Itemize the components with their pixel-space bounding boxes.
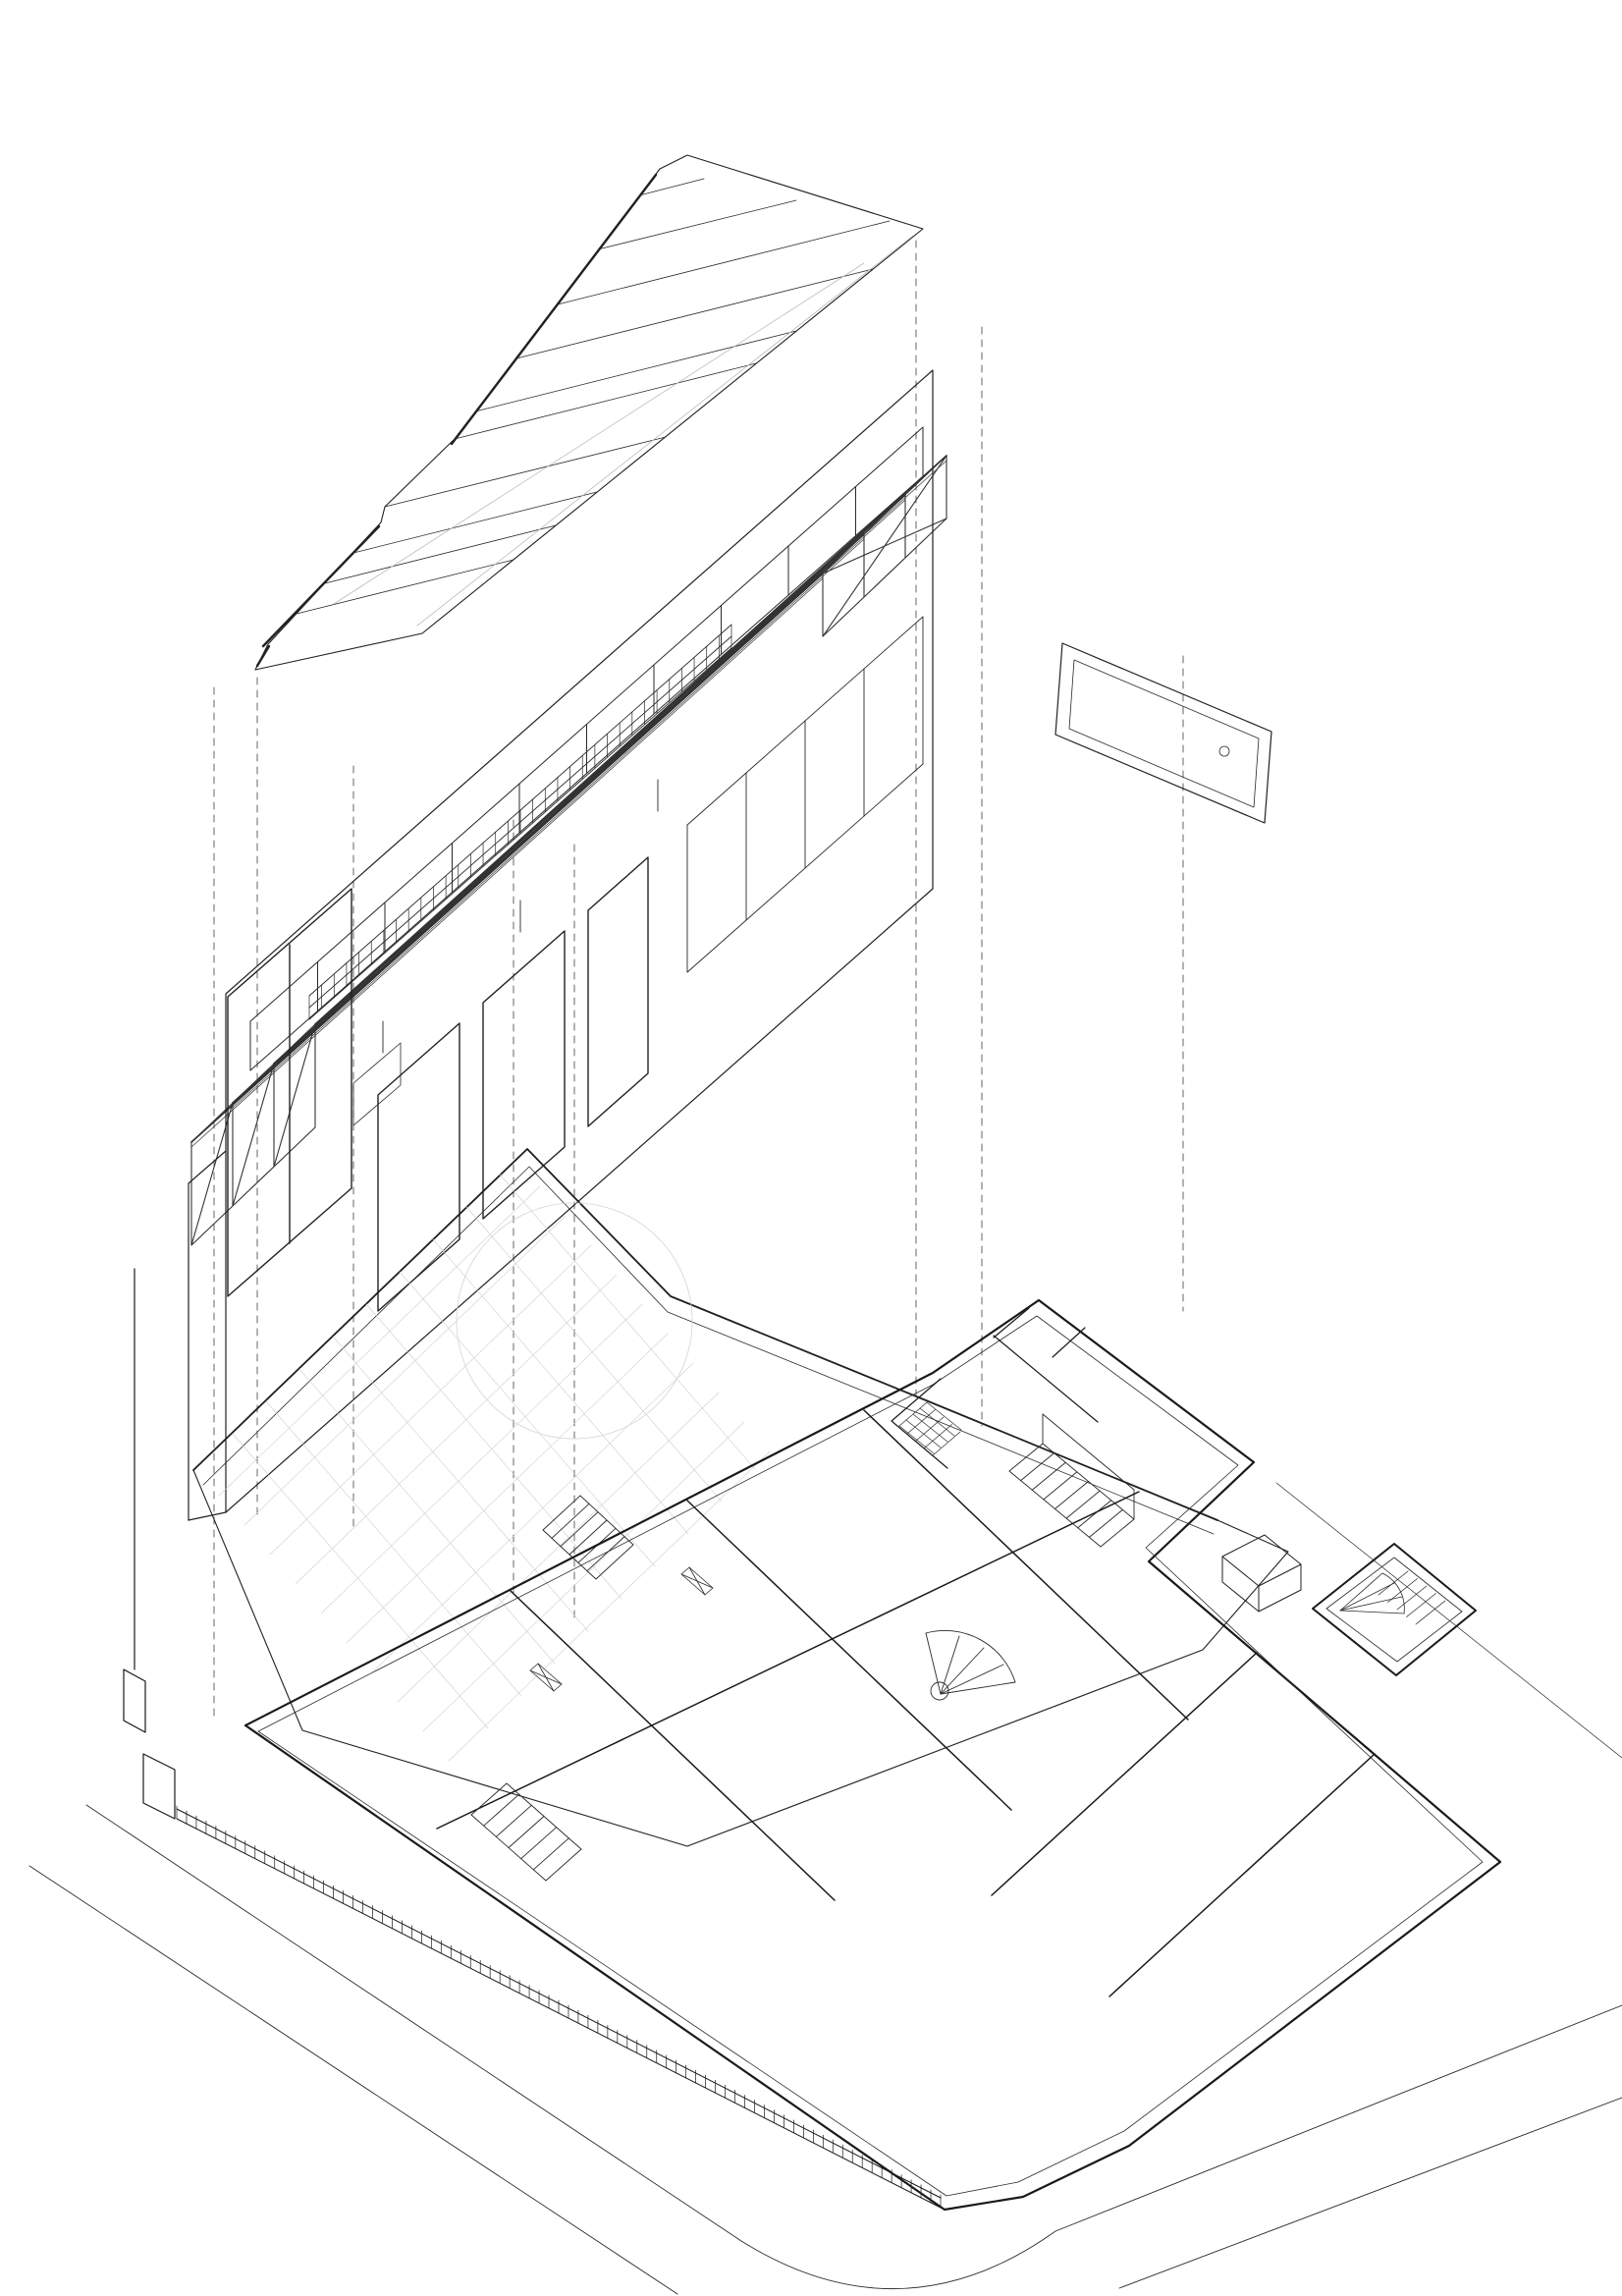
- winder-stair-room: [1313, 1544, 1476, 1675]
- plan-outer-walls: [245, 1300, 1500, 2210]
- court-tile-grid: [219, 1175, 770, 1761]
- roof-seams: [297, 179, 890, 614]
- plan-door-symbols: [530, 1567, 713, 1691]
- truss-end-frames: [191, 456, 946, 1245]
- court-parapet: [193, 1149, 1217, 1520]
- louver-blades: [309, 625, 731, 1019]
- court-parapet-inner: [203, 1167, 1214, 1534]
- street-curbs: [29, 1805, 1622, 2294]
- court-grand-stair: [1009, 1414, 1134, 1547]
- wall-lower-glazing: [687, 617, 923, 972]
- detached-window-frame: [1069, 660, 1259, 807]
- plan-inner-walls: [258, 1316, 1483, 2196]
- exploded-axonometric-drawing: [0, 0, 1622, 2296]
- street-fence-pickets: [177, 1806, 941, 2208]
- winder-stair-detail: [1326, 1558, 1462, 1662]
- drawing-page: [0, 0, 1622, 2296]
- dashed-projection-lines: [214, 241, 1183, 1719]
- facade-wall: [189, 370, 933, 1520]
- detached-window-panel: [1055, 643, 1271, 823]
- plan-stair-volute: [926, 1630, 1015, 1700]
- bench-box: [1222, 1535, 1301, 1612]
- wall-bracket: [353, 1043, 401, 1125]
- gate-piers: [124, 1269, 175, 1819]
